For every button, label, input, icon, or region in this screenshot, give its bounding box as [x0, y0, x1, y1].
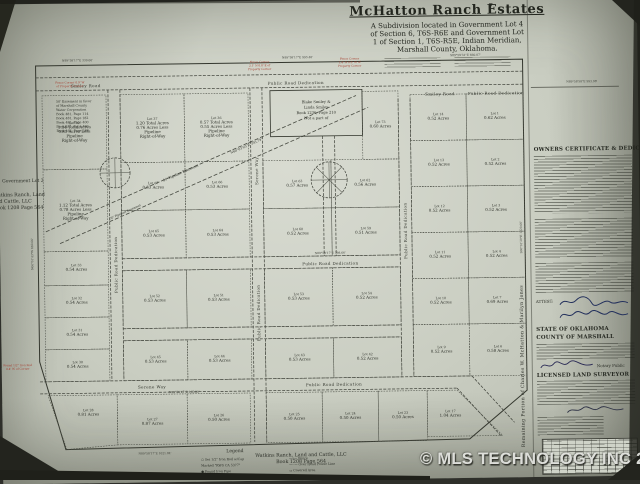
- state-of-oklahoma: STATE OF OKLAHOMA: [536, 326, 609, 333]
- bearing-label: N89°58'17"E 1021.84': [138, 451, 171, 455]
- map-note: 50' Pipeline Easement: [162, 163, 199, 182]
- lot-label: Lot 520.53 Acres: [144, 294, 166, 303]
- licensed-land-surveyor-heading: LICENSED LAND SURVEYOR: [537, 372, 629, 379]
- red-survey-note: Fence Corner2.1' N 0.8' E ofProperty Cor…: [248, 60, 272, 72]
- certificate-text-illegible-2: [535, 262, 633, 293]
- lot-label: Lot 130.52 Acres: [428, 158, 450, 167]
- road-diagonal-se: [457, 375, 515, 436]
- notary-text-illegible: [536, 343, 634, 360]
- legend-title: Legend: [226, 448, 243, 454]
- lot-label: Lot 371.20 Total Acres0.76 Acres LessPip…: [136, 117, 169, 139]
- surveyor-signature: [565, 404, 625, 416]
- red-survey-note: Fence Corner 0.9' Wof Property Corner: [55, 80, 84, 88]
- lot-label: Lot 420.52 Acres: [357, 352, 379, 361]
- lot-label: Lot 730.60 Acres: [370, 120, 392, 129]
- road-vertical-west: [108, 90, 124, 381]
- legend-item: Marked "RWS CA 5377": [201, 463, 241, 468]
- exception-parcel-label: Blake Smiley &Linda SmileyBook 1236, Pag…: [296, 100, 336, 121]
- bearing-label: N89°58'17"E 398.66': [315, 251, 346, 255]
- attest-label: ATTEST:: [536, 299, 554, 304]
- map-note: Watkins Ranch, Landand Cattle, LLCBook 1…: [0, 192, 45, 212]
- red-survey-note: Found 1/2" Iron Rod0.4' W of Corner: [3, 363, 32, 371]
- legend-item: —··— Over Head Power Line: [289, 462, 335, 467]
- lot-label: Lot 240.50 Acres: [340, 411, 362, 420]
- road-label: Serene Way: [254, 157, 259, 185]
- road-label: Public Road Dedication: [268, 80, 324, 86]
- legend-item: ● Found Iron Pipe: [201, 469, 231, 473]
- bearing-label: N89°58'17"E 993.40': [282, 55, 313, 59]
- lot-label: Lot 620.56 Acres: [354, 178, 376, 187]
- road-label: Public Road Dedication: [306, 381, 362, 387]
- plat-paper: Lot 351.14 Total Acres0.81 Acres LessPip…: [0, 0, 640, 484]
- owners-certificate-text-illegible: [534, 155, 633, 214]
- lot-label: Lot 360.57 Total Acres0.55 Acres LessPip…: [200, 116, 233, 138]
- lot-label: Lot 40.52 Acres: [486, 249, 508, 258]
- bearing-label: N89°58'17"E 165.00': [169, 390, 200, 394]
- legend-item: —x— Fence: [289, 456, 308, 460]
- map-note: N60°03'03"E 393.79': [230, 137, 263, 155]
- section-tie-line: [531, 86, 619, 88]
- plat-subtitle: A Subdivision located in Government Lot …: [347, 20, 547, 55]
- owner-signature-2: [558, 308, 630, 322]
- lot-label: Lot 20.52 Acres: [485, 157, 507, 166]
- surveyor-address-illegible: [537, 416, 603, 436]
- lot-label: Lot 120.52 Acres: [429, 204, 451, 213]
- legend-item: ○ Set 1/2" Iron Rod w/Cap: [201, 457, 244, 462]
- map-note: 50' Pipeline Easement: [109, 203, 142, 221]
- certificate-panel: OWNERS CERTIFICATE & DEDICATION ATTEST: …: [530, 0, 640, 477]
- map-note: Government Lot 2: [2, 178, 44, 185]
- certificate-text-illegible: [535, 218, 634, 259]
- county-of-marshall: COUNTY OF MARSHALL: [536, 334, 614, 341]
- lot-label: Lot 630.57 Acres: [286, 179, 308, 188]
- lot-label: Lot 260.50 Acres: [208, 413, 230, 422]
- lot-label: Lot 330.54 Acres: [65, 263, 87, 272]
- lot-label: Lot 30.52 Acres: [485, 203, 507, 212]
- road-label: Public Road Dedication: [302, 260, 358, 266]
- road-label: Public Road Dedication: [468, 90, 524, 96]
- lot-label: Lot 310.54 Acres: [66, 328, 88, 337]
- lot-label: Lot 540.52 Acres: [356, 291, 378, 300]
- lot-label: Lot 280.81 Acres: [78, 408, 100, 417]
- road-serene-way-horizontal: [40, 376, 472, 394]
- road-label: Serene Way: [138, 384, 166, 389]
- mls-watermark: © MLS TECHNOLOGY INC 2026: [420, 450, 640, 469]
- lot-label: Lot 440.53 Acres: [209, 354, 231, 363]
- road-label: Public Road Dedication: [402, 203, 408, 259]
- title-block: McHatton Ranch Estates A Subdivision loc…: [347, 2, 548, 74]
- lot-label: Lot 640.53 Acres: [207, 228, 229, 237]
- bearing-label: N89°58'17"E 330.00': [62, 58, 93, 62]
- notary-signature: [539, 359, 595, 371]
- lot-label: Lot 171.04 Acres: [440, 409, 462, 418]
- lot-label: Lot 600.52 Acres: [287, 227, 309, 236]
- owner-signature-1: [558, 294, 630, 308]
- subdivision-boundary: [36, 59, 528, 450]
- lot-label: Lot 341.12 Total Acres0.78 Acres LessPip…: [59, 199, 92, 221]
- lot-label: Lot 670.53 Acres: [142, 181, 164, 190]
- title-footnote-left-illegible: [385, 57, 441, 69]
- surveyor-text-illegible: [537, 380, 635, 405]
- road-middle-1: [122, 255, 400, 271]
- lot-label: Lot 230.50 Acres: [392, 411, 414, 420]
- road-label: Smiley Road: [425, 91, 455, 96]
- title-footnote-right-illegible: [454, 56, 510, 68]
- lot-label: Lot 100.52 Acres: [430, 296, 452, 305]
- photo-of-plat-document: Lot 351.14 Total Acres0.81 Acres LessPip…: [0, 0, 640, 480]
- lot-boundary: [48, 395, 118, 450]
- road-label: Public Road Dedication: [113, 237, 119, 293]
- lot-label: Lot 270.87 Acres: [142, 417, 164, 426]
- lot-label: Lot 250.50 Acres: [284, 412, 306, 421]
- lot-label: Lot 650.53 Acres: [143, 229, 165, 238]
- lot-label: Lot 300.54 Acres: [67, 360, 89, 369]
- road-label: Public Road Dedication: [256, 285, 262, 341]
- lot-label: Lot 450.53 Acres: [145, 355, 167, 364]
- map-note: 50' Easement in favorof Marshall CountyW…: [56, 99, 92, 133]
- legend-item: ▭ Covered Area: [289, 468, 315, 472]
- lot-label: Lot 60.58 Acres: [487, 344, 509, 353]
- plat-title: McHatton Ranch Estates: [347, 2, 547, 20]
- bearing-label: N00°01'43"W 660.00': [30, 238, 34, 270]
- notary-public-label: Notary Public: [597, 363, 625, 368]
- lot-label: Lot 320.54 Acres: [66, 296, 88, 305]
- lot-label: Lot 140.52 Acres: [427, 112, 449, 121]
- owners-certificate-heading: OWNERS CERTIFICATE & DEDICATION: [534, 145, 640, 153]
- lot-label: Lot 590.51 Acres: [355, 226, 377, 235]
- lot-label: Lot 70.69 Acres: [486, 295, 508, 304]
- lot-label: Lot 510.53 Acres: [208, 293, 230, 302]
- lot-label: Lot 10.62 Acres: [484, 111, 506, 120]
- lot-label: Lot 110.52 Acres: [429, 250, 451, 259]
- lot-label: Lot 90.52 Acres: [431, 345, 453, 354]
- road-middle-2: [123, 325, 401, 341]
- lot-label: Lot 530.53 Acres: [288, 292, 310, 301]
- lot-label: Lot 660.53 Acres: [206, 180, 228, 189]
- lot-label: Lot 430.53 Acres: [289, 353, 311, 362]
